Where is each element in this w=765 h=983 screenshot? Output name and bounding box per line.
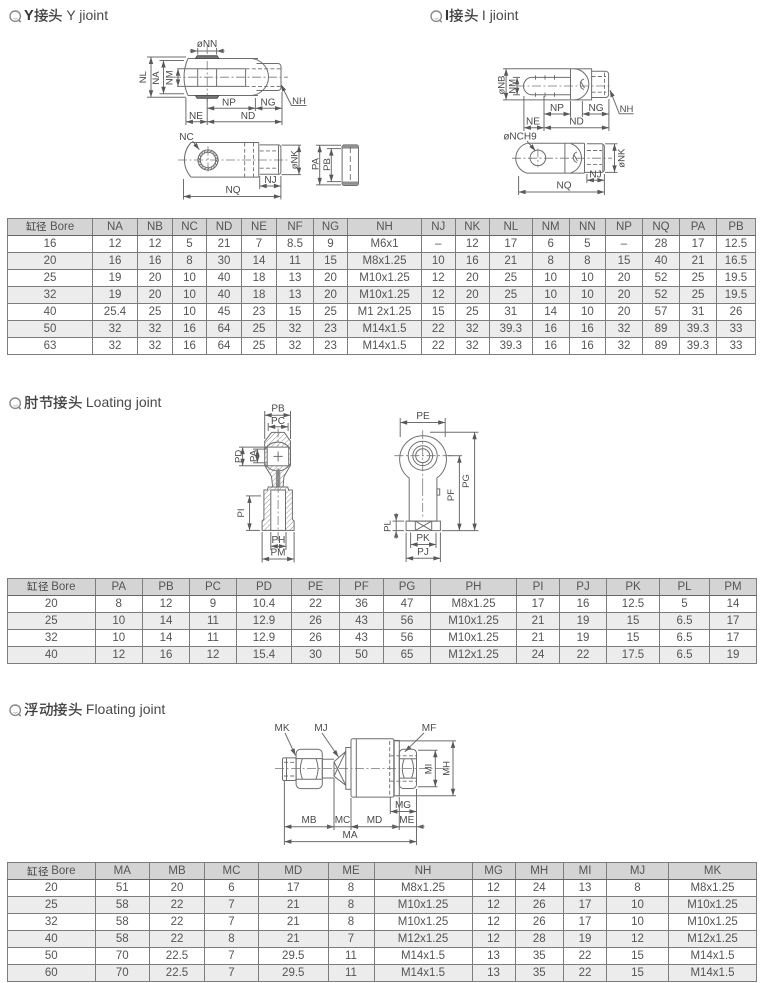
svg-text:ND: ND (241, 111, 255, 122)
svg-text:NQ: NQ (226, 185, 241, 196)
svg-text:øNN: øNN (197, 39, 218, 50)
svg-text:NP: NP (222, 97, 236, 108)
svg-text:NJ: NJ (264, 175, 276, 186)
svg-text:NE: NE (189, 111, 203, 122)
svg-text:NC: NC (179, 132, 193, 143)
svg-text:PA: PA (248, 449, 259, 462)
svg-text:PG: PG (461, 474, 472, 488)
svg-text:PC: PC (271, 416, 285, 427)
svg-text:NE: NE (526, 117, 540, 128)
svg-text:øNCH9: øNCH9 (503, 132, 537, 143)
svg-text:PL: PL (383, 520, 394, 532)
svg-text:MH: MH (442, 761, 453, 776)
svg-text:PA: PA (311, 157, 322, 170)
svg-text:ND: ND (569, 117, 583, 128)
svg-text:PD: PD (234, 450, 245, 463)
svg-text:PB: PB (271, 404, 285, 415)
svg-text:MA: MA (343, 830, 358, 841)
svg-text:PI: PI (236, 509, 247, 518)
svg-text:NH: NH (620, 104, 634, 115)
svg-text:PB: PB (322, 158, 333, 171)
svg-text:PM: PM (271, 548, 286, 559)
svg-text:NL: NL (138, 71, 149, 83)
svg-text:PF: PF (446, 489, 457, 501)
svg-text:NQ: NQ (557, 181, 572, 192)
svg-text:NM: NM (508, 79, 519, 94)
svg-text:øNK: øNK (289, 150, 300, 170)
svg-text:NM: NM (165, 70, 176, 85)
svg-text:MK: MK (275, 723, 290, 734)
svg-text:MG: MG (395, 800, 411, 811)
svg-text:øNK: øNK (617, 148, 628, 168)
svg-text:NG: NG (261, 97, 276, 108)
svg-text:ME: ME (399, 815, 414, 826)
svg-text:PH: PH (271, 535, 285, 546)
svg-text:øNB: øNB (497, 76, 508, 95)
svg-text:MJ: MJ (314, 723, 327, 734)
svg-text:NG: NG (589, 103, 604, 114)
svg-text:NH: NH (292, 96, 306, 107)
svg-text:NP: NP (550, 103, 564, 114)
svg-text:MF: MF (422, 723, 436, 734)
svg-text:MD: MD (367, 815, 383, 826)
svg-text:NJ: NJ (589, 169, 601, 180)
svg-text:MI: MI (424, 764, 435, 775)
svg-text:MC: MC (335, 815, 351, 826)
svg-text:MB: MB (302, 815, 317, 826)
svg-text:PE: PE (416, 411, 430, 422)
svg-text:PJ: PJ (417, 547, 429, 558)
svg-text:PK: PK (416, 533, 430, 544)
svg-text:NA: NA (151, 71, 162, 85)
